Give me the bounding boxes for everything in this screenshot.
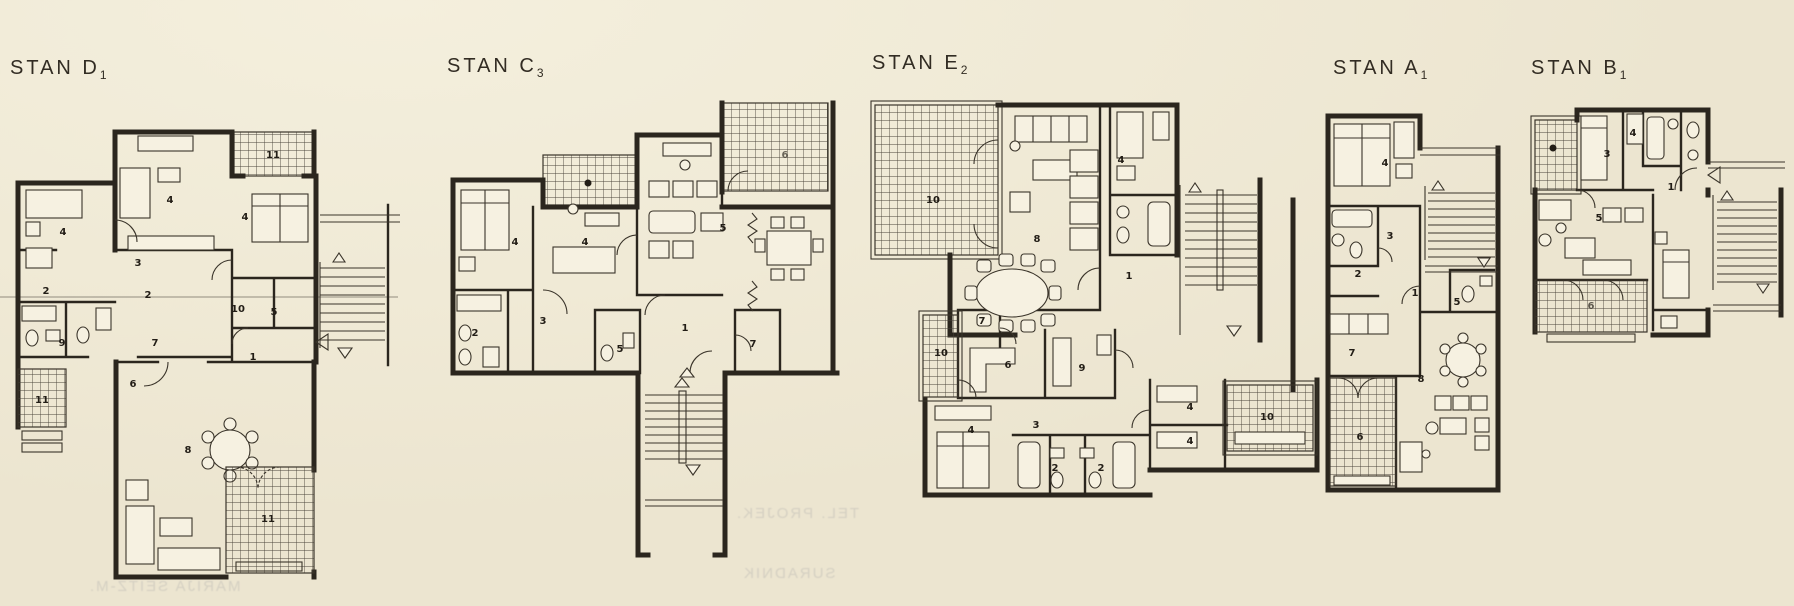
- floorplan-c3-drawing: 6 4 4 5 2 3: [435, 85, 855, 605]
- room-number: 4: [1187, 436, 1194, 447]
- room-number: 1: [1668, 182, 1675, 193]
- room-number: 3: [1033, 420, 1040, 431]
- room-number: 4: [1118, 155, 1125, 166]
- floorplan-e2: 10 8 4 1 7 10 6: [865, 80, 1325, 510]
- balcony-hatch-bottom-right: 11: [226, 467, 314, 573]
- balcony-dot: [1550, 145, 1557, 152]
- room-number: 5: [271, 307, 278, 318]
- closet-row: [128, 236, 214, 250]
- bathroom-center: 2: [77, 290, 152, 343]
- bathroom: [1647, 117, 1678, 159]
- plan-title-e2-sub: 2: [961, 63, 968, 77]
- desk: [1400, 442, 1430, 472]
- floorplan-d1-drawing: 11 4 4 4 3 2 2 10 5 9 7 1 6: [8, 110, 398, 600]
- room-number: 10: [1260, 412, 1274, 423]
- plan-title-c3: STAN C3: [447, 55, 544, 80]
- room-number: 8: [1034, 234, 1041, 245]
- room-number: 6: [1588, 301, 1595, 312]
- plan-title-b1-text: STAN B: [1531, 57, 1620, 79]
- staircase: [1180, 183, 1257, 336]
- bedroom-left-furniture: 4: [459, 190, 519, 271]
- staircase: [1713, 191, 1781, 311]
- floorplan-a1-drawing: 4 3 2 1 5 7 8: [1320, 98, 1505, 503]
- balcony-dot: [585, 180, 592, 187]
- floorplan-a1: 4 3 2 1 5 7 8: [1320, 98, 1505, 503]
- plan-title-d1-text: STAN D: [10, 57, 100, 79]
- room-number: 3: [1387, 231, 1394, 242]
- room-number: 2: [43, 286, 50, 297]
- room-number: 1: [1412, 288, 1419, 299]
- room-number: 4: [1382, 158, 1389, 169]
- balcony-hatch-bottom: 6: [1535, 280, 1647, 342]
- room-number: 11: [261, 514, 275, 525]
- room-number: 2: [1355, 269, 1362, 280]
- balcony-hatch-right: 6: [722, 103, 828, 191]
- plan-title-b1: STAN B1: [1531, 57, 1626, 82]
- room-number: 6: [130, 379, 137, 390]
- living-furniture: 5: [1539, 200, 1643, 275]
- room-number: 5: [1454, 297, 1461, 308]
- balcony-hatch-center: [543, 155, 637, 205]
- room-number: 4: [167, 195, 174, 206]
- bedroom-right-furniture: 4: [242, 194, 308, 242]
- floorplan-b1: 3 4 1 5 6: [1523, 100, 1794, 435]
- bedroom-top-furniture: 4: [120, 136, 193, 218]
- room-number: 9: [1079, 363, 1086, 374]
- plan-title-c3-text: STAN C: [447, 55, 537, 77]
- wc: 5: [1454, 276, 1492, 308]
- floorplan-c3: 6 4 4 5 2 3: [435, 85, 855, 605]
- bedroom-furniture: 4: [1334, 122, 1414, 186]
- loggia-hatch: 10: [919, 311, 962, 401]
- room-number: 4: [968, 425, 975, 436]
- closet-row: 7: [1330, 314, 1388, 359]
- bathroom: 2: [457, 295, 501, 367]
- room-number: 4: [242, 212, 249, 223]
- wc: [1687, 122, 1699, 160]
- bedroom-right: [1655, 232, 1689, 298]
- plan-title-a1: STAN A1: [1333, 57, 1427, 82]
- plan-title-a1-text: STAN A: [1333, 57, 1421, 79]
- room-number: 11: [266, 150, 280, 161]
- living-furniture: [126, 480, 220, 570]
- room-number: 4: [60, 227, 67, 238]
- plan-title-e2: STAN E2: [872, 52, 967, 77]
- room-number: 5: [720, 223, 727, 234]
- room-number: 2: [1052, 463, 1059, 474]
- plan-title-c3-sub: 3: [537, 66, 544, 80]
- room-number: 5: [1596, 213, 1603, 224]
- room-number: 11: [35, 395, 49, 406]
- room-number: 7: [1349, 348, 1356, 359]
- bedroom-bottomleft: 4: [935, 406, 991, 488]
- wc: 5: [601, 333, 634, 361]
- room-number: 1: [682, 323, 689, 334]
- living-furniture: 8: [1010, 116, 1098, 250]
- utility-room: [1661, 316, 1677, 328]
- floorplan-e2-drawing: 10 8 4 1 7 10 6: [865, 80, 1325, 510]
- room-number: 6: [782, 150, 789, 161]
- room-number: 4: [582, 237, 589, 248]
- bedrooms-wing: 4 4: [1157, 386, 1197, 448]
- staircase: [638, 368, 725, 555]
- scanned-floorplan-page: { "paper": { "background": "#f0ead6", "i…: [0, 0, 1794, 606]
- staircase: [1425, 181, 1498, 272]
- room-number: 7: [152, 338, 159, 349]
- dining-furniture: [748, 213, 823, 311]
- room-number: 3: [135, 258, 142, 269]
- balcony-hatch-top: [1531, 116, 1581, 194]
- room-number: 1: [250, 352, 257, 363]
- balcony-hatch-top: 11: [234, 132, 314, 176]
- dining-area: 8: [1418, 333, 1486, 387]
- plan-title-d1: STAN D1: [10, 57, 107, 82]
- study-furniture: 6: [970, 348, 1015, 392]
- sofa-group: [1426, 396, 1489, 450]
- room-number: 10: [934, 348, 948, 359]
- bedroom-topright: 4: [1117, 112, 1169, 180]
- room-number: 1: [1126, 271, 1133, 282]
- room-number: 9: [59, 338, 66, 349]
- plan-title-e2-text: STAN E: [872, 52, 961, 74]
- plan-title-d1-sub: 1: [100, 68, 107, 82]
- floorplan-d1: 11 4 4 4 3 2 2 10 5 9 7 1 6: [8, 110, 398, 600]
- room-number: 8: [185, 445, 192, 456]
- terrace-hatch: 6: [1330, 378, 1396, 486]
- room-number: 10: [926, 195, 940, 206]
- bathroom-left: 2: [22, 286, 60, 346]
- room-number: 5: [617, 344, 624, 355]
- room-number: 4: [512, 237, 519, 248]
- plan-title-a1-sub: 1: [1421, 68, 1428, 82]
- room-number: 4: [1187, 402, 1194, 413]
- living-furniture: 5: [649, 143, 727, 258]
- bathroom-right: [1117, 202, 1170, 246]
- room-number: 2: [1098, 463, 1105, 474]
- bedroom-mid-furniture: 4: [553, 204, 619, 273]
- room-number: 3: [1604, 149, 1611, 160]
- room-number: 10: [231, 304, 245, 315]
- room-number: 7: [979, 316, 986, 327]
- room-number: 4: [1630, 128, 1637, 139]
- balcony-hatch-bottom-left: 11: [18, 369, 66, 452]
- floorplan-b1-drawing: 3 4 1 5 6: [1523, 100, 1794, 435]
- bedroom-left-furniture: 4: [26, 190, 82, 268]
- balcony-hatch-wing: 10: [1223, 381, 1317, 455]
- room-number: 3: [540, 316, 547, 327]
- room-number: 6: [1357, 432, 1364, 443]
- balcony-rail: [1420, 148, 1500, 155]
- bathroom: 3: [1332, 210, 1394, 258]
- plan-title-b1-sub: 1: [1620, 68, 1627, 82]
- room-number: 6: [1005, 360, 1012, 371]
- bedroom-9: 9: [1053, 335, 1111, 386]
- room-number: 2: [145, 290, 152, 301]
- bedroom-top: 3 4: [1581, 114, 1643, 180]
- room-number: 8: [1418, 374, 1425, 385]
- terrace-hatch: 10: [871, 101, 1002, 259]
- room-number: 2: [472, 328, 479, 339]
- bathrooms-bottom: 2 2: [1018, 442, 1135, 488]
